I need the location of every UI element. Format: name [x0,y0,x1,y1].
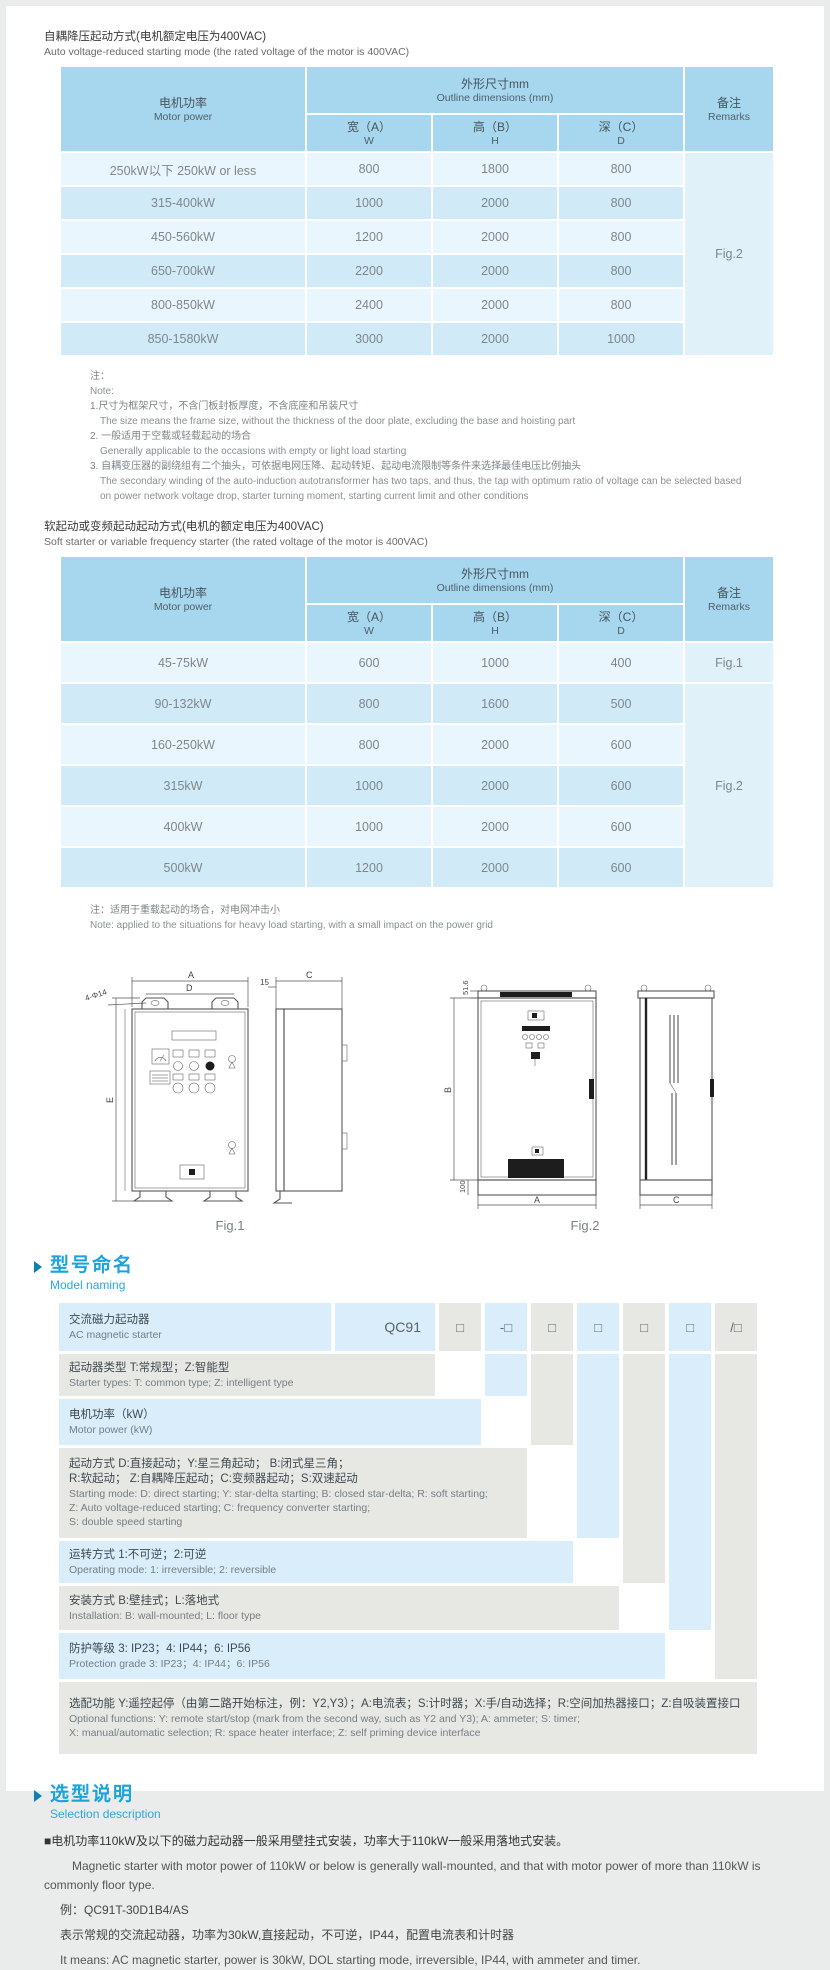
code-band [715,1354,757,1679]
figures-row: A D 4-Φ14 E [6,967,824,1233]
code-box: □ [531,1303,573,1351]
table1-title-en: Auto voltage-reduced starting mode (the … [44,45,824,59]
code-box: □ [669,1303,711,1351]
cell-power: 90-132kW [61,684,305,723]
selection-body: ■电机功率110kW及以下的磁力起动器一般采用壁挂式安装，功率大于110kW一般… [44,1832,786,1970]
model-row-starter-type: 起动器类型 T:常规型；Z:智能型 Starter types: T: comm… [59,1354,435,1396]
cell-w: 800 [307,153,431,185]
cell-w: 2400 [307,289,431,321]
cell-d: 400 [559,643,683,682]
col-motor-power: 电机功率 Motor power [61,67,305,151]
note-item: 1.尺寸为框架尺寸，不含门板封板厚度，不含底座和吊装尺寸 [90,399,824,414]
table1-title-zh: 自耦降压起动方式(电机额定电压为400VAC) [44,30,824,45]
table-row: 315kW 1000 2000 600 [61,766,773,805]
note-item: 2. 一般适用于空载或轻载起动的场合 [90,429,824,444]
fig2-caption: Fig.2 [420,1218,750,1233]
col-outline-dimensions: 外形尺寸mm Outline dimensions (mm) [307,67,683,113]
cell-remark-fig1: Fig.1 [685,643,773,682]
cell-power: 850-1580kW [61,323,305,355]
table-row: 160-250kW 800 2000 600 [61,725,773,764]
table-row: 315-400kW 1000 2000 800 [61,187,773,219]
cell-h: 1800 [433,153,557,185]
table2-note: 注：适用于重载起动的场合，对电网冲击小 Note: applied to the… [90,903,824,933]
section-marker-icon [34,1790,42,1802]
cell-w: 1000 [307,766,431,805]
table-row: 800-850kW 2400 2000 800 [61,289,773,321]
col-width-a: 宽（A）W [307,115,431,151]
code-box: □ [577,1303,619,1351]
fig1-controls [173,1050,215,1093]
cell-h: 1000 [433,643,557,682]
model-naming-table: 交流磁力起动器 AC magnetic starter QC91 □ -□ □ … [59,1303,757,1754]
cell-h: 2000 [433,255,557,287]
model-row-installation: 安装方式 B:壁挂式；L:落地式 Installation: B: wall-m… [59,1586,619,1630]
note-label-zh: 注： [90,369,824,384]
fig1-drawing: A D 4-Φ14 E [80,967,380,1211]
cell-h: 2000 [433,187,557,219]
col-depth-c: 深（C）D [559,115,683,151]
col-remarks: 备注 Remarks [685,67,773,151]
cell-power: 315-400kW [61,187,305,219]
cell-h: 2000 [433,848,557,887]
model-row-product: 交流磁力起动器 AC magnetic starter [59,1303,331,1351]
cell-h: 2000 [433,289,557,321]
cell-power: 315kW [61,766,305,805]
fig2-roof-hatch [500,992,572,997]
selection-paragraph: 表示常规的交流起动器，功率为30kW,直接起动，不可逆，IP44，配置电流表和计… [44,1926,786,1945]
cell-power: 400kW [61,807,305,846]
table2-title: 软起动或变频起动起动方式(电机的额定电压为400VAC) Soft starte… [44,520,824,549]
table-row: 400kW 1000 2000 600 [61,807,773,846]
cell-w: 600 [307,643,431,682]
cell-power: 650-700kW [61,255,305,287]
fig2-dim-a: A [534,1195,540,1205]
table1-title: 自耦降压起动方式(电机额定电压为400VAC) Auto voltage-red… [44,30,824,59]
code-band [623,1354,665,1583]
cell-d: 600 [559,848,683,887]
cell-d: 800 [559,153,683,185]
heading-en: Model naming [50,1277,134,1293]
col-motor-power: 电机功率 Motor power [61,557,305,641]
model-row-protection-grade: 防护等级 3: IP23；4: IP44；6: IP56 Protection … [59,1633,665,1679]
cell-w: 3000 [307,323,431,355]
code-box: □ [623,1303,665,1351]
fig1-dim-a: A [188,970,194,980]
table2-title-en: Soft starter or variable frequency start… [44,535,824,549]
heading-en: Selection description [50,1806,161,1822]
fig1-dim-e: E [105,1097,115,1103]
col-width-a: 宽（A）W [307,605,431,641]
cell-remark-fig2: Fig.2 [685,684,773,887]
selection-example: 例：QC91T-30D1B4/AS [44,1901,786,1920]
table-row: 90-132kW 800 1600 500 Fig.2 [61,684,773,723]
cell-d: 600 [559,725,683,764]
table-row: 500kW 1200 2000 600 [61,848,773,887]
code-box: □ [439,1303,481,1351]
fig2-dim-100: 100 [458,1180,467,1193]
cell-d: 600 [559,807,683,846]
note-label-en: Note: [90,384,824,399]
figure-2: 51.6 B [420,967,750,1233]
fig1-dim-15: 15 [260,978,269,987]
col-height-b: 高（B）H [433,605,557,641]
col-remarks: 备注 Remarks [685,557,773,641]
cell-w: 1000 [307,807,431,846]
fig2-dim-516: 51.6 [461,980,470,995]
cell-d: 1000 [559,323,683,355]
cell-w: 2200 [307,255,431,287]
cell-power: 500kW [61,848,305,887]
cell-d: 800 [559,187,683,219]
cell-power: 45-75kW [61,643,305,682]
code-box: /□ [715,1303,757,1351]
cell-d: 800 [559,255,683,287]
cell-power: 160-250kW [61,725,305,764]
fig2-vents [670,1015,678,1165]
cell-h: 2000 [433,807,557,846]
cell-w: 1000 [307,187,431,219]
note-item: 3. 自耦变压器的副绕组有二个抽头，可依据电网压降、起动转矩、起动电流限制等条件… [90,459,824,474]
heading-zh: 选型说明 [50,1784,161,1806]
table-header-row: 电机功率 Motor power 外形尺寸mm Outline dimensio… [61,67,773,113]
fig1-dim-d: D [186,983,193,993]
col-outline-dimensions: 外形尺寸mm Outline dimensions (mm) [307,557,683,603]
fig1-dim-hole: 4-Φ14 [84,987,109,1003]
note-item: Generally applicable to the occasions wi… [90,444,750,459]
note-item: 注：适用于重载起动的场合，对电网冲击小 [90,903,824,918]
table-row: 650-700kW 2200 2000 800 [61,255,773,287]
model-row-motor-power: 电机功率（kW） Motor power (kW) [59,1399,481,1445]
cell-d: 800 [559,289,683,321]
cell-power: 250kW以下 250kW or less [61,153,305,185]
model-row-starting-mode: 起动方式 D:直接起动；Y:星三角起动； B:闭式星三角； R:软起动； Z:自… [59,1448,527,1538]
cell-h: 2000 [433,221,557,253]
note-item: The secondary winding of the auto-induct… [90,474,750,504]
table-header-row: 电机功率 Motor power 外形尺寸mm Outline dimensio… [61,557,773,603]
cell-d: 600 [559,766,683,805]
cell-w: 800 [307,684,431,723]
code-band [577,1354,619,1538]
table-row: 250kW以下 250kW or less 800 1800 800 Fig.2 [61,153,773,185]
selection-heading: 选型说明 Selection description [34,1784,824,1822]
cell-remark: Fig.2 [685,153,773,355]
table2-title-zh: 软起动或变频起动起动方式(电机的额定电压为400VAC) [44,520,824,535]
model-code-prefix: QC91 [335,1303,435,1351]
note-item: Note: applied to the situations for heav… [90,918,824,933]
code-band [485,1354,527,1396]
figure-1: A D 4-Φ14 E [80,967,380,1233]
cell-h: 2000 [433,323,557,355]
fig1-dim-c: C [306,970,313,980]
cell-h: 2000 [433,766,557,805]
catalog-page: 自耦降压起动方式(电机额定电压为400VAC) Auto voltage-red… [6,6,824,1791]
fig2-controls [522,1011,550,1066]
cell-h: 1600 [433,684,557,723]
cell-d: 800 [559,221,683,253]
table1-notes: 注： Note: 1.尺寸为框架尺寸，不含门板封板厚度，不含底座和吊装尺寸 Th… [90,369,824,504]
model-row-optional-functions: 选配功能 Y:遥控起停（由第二路开始标注，例：Y2,Y3）；A:电流表；S:计时… [59,1682,757,1754]
note-item: The size means the frame size, without t… [90,414,750,429]
selection-paragraph: ■电机功率110kW及以下的磁力起动器一般采用壁挂式安装，功率大于110kW一般… [44,1832,786,1851]
cell-d: 500 [559,684,683,723]
table-row: 450-560kW 1200 2000 800 [61,221,773,253]
col-depth-c: 深（C）D [559,605,683,641]
soft-starter-table: 电机功率 Motor power 外形尺寸mm Outline dimensio… [59,555,775,889]
code-band [531,1354,573,1445]
fig2-dim-b: B [443,1087,453,1093]
selection-paragraph: Magnetic starter with motor power of 110… [44,1857,786,1895]
cell-h: 2000 [433,725,557,764]
selection-paragraph: It means: AC magnetic starter, power is … [44,1951,786,1970]
cell-w: 1200 [307,848,431,887]
code-band [669,1354,711,1630]
table-row: 850-1580kW 3000 2000 1000 [61,323,773,355]
table-row: 45-75kW 600 1000 400 Fig.1 [61,643,773,682]
heading-zh: 型号命名 [50,1255,134,1277]
model-row-operating-mode: 运转方式 1:不可逆；2:可逆 Operating mode: 1: irrev… [59,1541,573,1583]
fig1-caption: Fig.1 [80,1218,380,1233]
section-marker-icon [34,1261,42,1273]
col-height-b: 高（B）H [433,115,557,151]
fig2-dim-c: C [673,1195,680,1205]
auto-voltage-table: 电机功率 Motor power 外形尺寸mm Outline dimensio… [59,65,775,357]
model-naming-heading: 型号命名 Model naming [34,1255,824,1293]
fig2-drawing: 51.6 B [420,967,750,1211]
cell-w: 800 [307,725,431,764]
cell-power: 450-560kW [61,221,305,253]
cell-power: 800-850kW [61,289,305,321]
cell-w: 1200 [307,221,431,253]
code-box: -□ [485,1303,527,1351]
